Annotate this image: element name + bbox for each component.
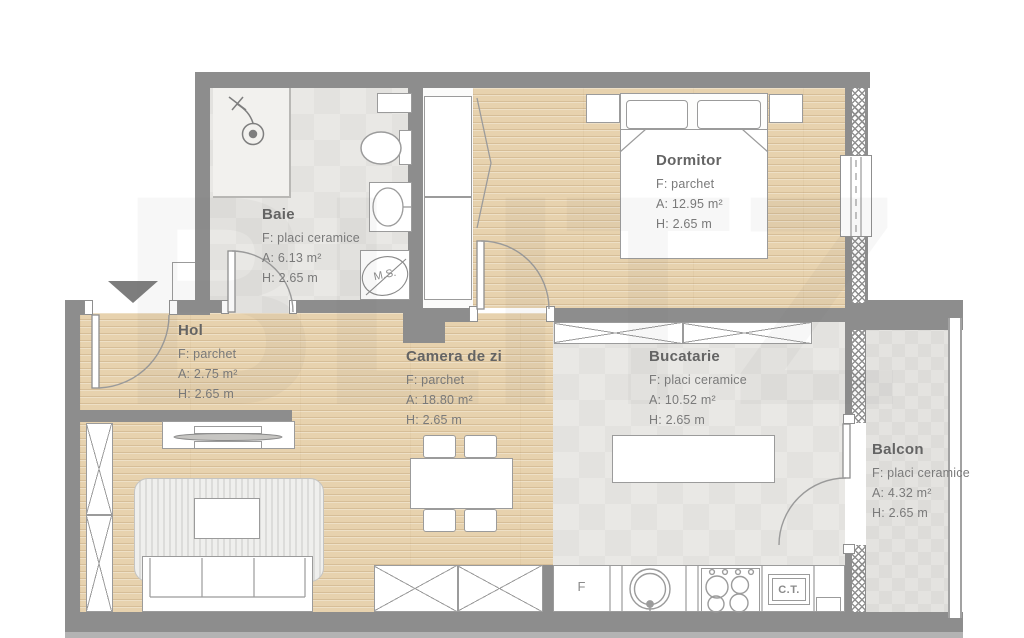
door-jamb — [169, 300, 178, 315]
wall-left — [65, 300, 80, 632]
kitchen-island — [612, 435, 775, 483]
dining-table — [410, 458, 513, 509]
dining-chair — [423, 509, 456, 532]
room-floor-finish: F: parchet — [178, 347, 238, 361]
room-height: H: 2.65 m — [262, 271, 360, 285]
room-floor-finish: F: placi ceramice — [262, 231, 360, 245]
door-jamb — [843, 414, 855, 424]
room-height: H: 2.65 m — [649, 413, 747, 427]
insulation-hatch — [852, 237, 865, 303]
room-area: A: 4.32 m² — [872, 486, 970, 500]
door-jamb — [221, 300, 229, 314]
room-label-camera-de-zi: Camera de zi F: parchet A: 18.80 m² H: 2… — [406, 348, 502, 427]
insulation-hatch — [852, 545, 865, 612]
nightstand-right — [769, 94, 803, 123]
boiler-label: C.T. — [768, 574, 810, 605]
toilet-side — [399, 130, 412, 165]
closet-cabinet-upper — [424, 96, 472, 197]
door-jamb — [469, 306, 478, 322]
room-name: Baie — [262, 206, 360, 223]
kitchen-cabinet — [683, 322, 812, 344]
washing-machine-label: M.S. — [355, 245, 414, 304]
pillow-left — [626, 100, 688, 129]
fridge-label: F — [553, 565, 610, 608]
room-area: A: 10.52 m² — [649, 393, 747, 407]
room-area: A: 12.95 m² — [656, 197, 723, 211]
pillow-right — [697, 100, 761, 129]
room-name: Dormitor — [656, 152, 723, 169]
room-name: Balcon — [872, 441, 970, 458]
room-label-bucatarie: Bucatarie F: placi ceramice A: 10.52 m² … — [649, 348, 747, 427]
room-label-hol: Hol F: parchet A: 2.75 m² H: 2.65 m — [178, 322, 238, 401]
room-floor-finish: F: placi ceramice — [649, 373, 747, 387]
room-name: Bucatarie — [649, 348, 747, 365]
bedroom-window — [840, 155, 872, 237]
room-label-dormitor: Dormitor F: parchet A: 12.95 m² H: 2.65 … — [656, 152, 723, 231]
dining-chair — [464, 435, 497, 458]
wardrobe-upper — [86, 423, 113, 515]
wall-bottom-shadow — [65, 632, 963, 638]
toilet-tank — [377, 93, 412, 113]
room-floor-finish: F: parchet — [406, 373, 502, 387]
nightstand-left — [586, 94, 620, 123]
wardrobe-lower — [86, 515, 113, 612]
wall-bottom — [65, 612, 963, 632]
dining-chair — [423, 435, 456, 458]
bathroom-sink — [369, 182, 412, 232]
room-area: A: 6.13 m² — [262, 251, 360, 265]
room-label-balcon: Balcon F: placi ceramice A: 4.32 m² H: 2… — [872, 441, 970, 520]
room-floor-finish: F: parchet — [656, 177, 723, 191]
storage-cabinet — [458, 565, 543, 612]
apartment-floor-plan: M.S. F C.T. — [0, 0, 1024, 638]
room-area: A: 18.80 m² — [406, 393, 502, 407]
wall-balcony-top — [845, 300, 963, 330]
room-area: A: 2.75 m² — [178, 367, 238, 381]
room-height: H: 2.65 m — [656, 217, 723, 231]
room-label-baie: Baie F: placi ceramice A: 6.13 m² H: 2.6… — [262, 206, 360, 285]
door-jamb — [546, 306, 555, 322]
wall-bathroom-left — [195, 72, 210, 315]
kitchen-cabinet — [554, 322, 683, 344]
tv-unit-shelf — [194, 426, 262, 434]
room-height: H: 2.65 m — [406, 413, 502, 427]
counter-end-cabinet — [816, 597, 841, 612]
storage-cabinet — [374, 565, 458, 612]
door-jamb — [843, 544, 855, 554]
room-name: Hol — [178, 322, 238, 339]
entrance-arrow-icon — [108, 281, 158, 303]
wall-top — [195, 72, 870, 88]
wall-bedroom-kitchen-right — [549, 308, 845, 322]
wall-pillar — [403, 308, 445, 343]
closet-cabinet-lower — [424, 197, 472, 300]
room-name: Camera de zi — [406, 348, 502, 365]
room-floor-finish: F: placi ceramice — [872, 466, 970, 480]
insulation-hatch — [852, 330, 865, 423]
door-jamb — [84, 300, 93, 315]
cooktop — [701, 568, 760, 612]
sofa — [142, 556, 313, 612]
insulation-hatch — [852, 88, 865, 155]
room-height: H: 2.65 m — [178, 387, 238, 401]
tv-unit-shelf — [194, 441, 262, 449]
shower-area — [213, 88, 291, 198]
room-height: H: 2.65 m — [872, 506, 970, 520]
door-jamb — [289, 300, 297, 314]
coffee-table — [194, 498, 260, 539]
dining-chair — [464, 509, 497, 532]
